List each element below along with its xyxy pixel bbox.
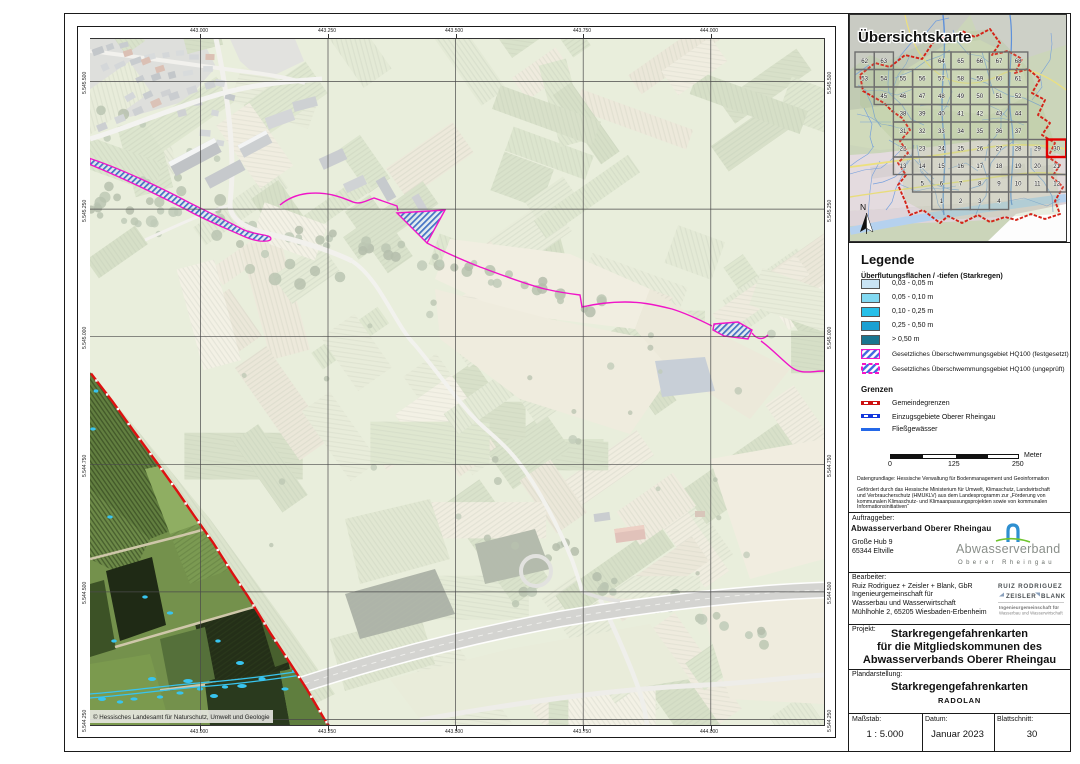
svg-text:37: 37 bbox=[1014, 128, 1021, 135]
svg-text:64: 64 bbox=[938, 58, 945, 65]
svg-text:10: 10 bbox=[1014, 180, 1021, 187]
svg-text:5: 5 bbox=[920, 180, 924, 187]
svg-text:22: 22 bbox=[899, 145, 906, 152]
svg-text:52: 52 bbox=[1014, 93, 1021, 100]
svg-text:38: 38 bbox=[899, 110, 906, 117]
svg-text:55: 55 bbox=[899, 75, 906, 82]
svg-text:68: 68 bbox=[1014, 58, 1021, 65]
svg-text:RUIZ RODRIGUEZ: RUIZ RODRIGUEZ bbox=[998, 583, 1062, 590]
svg-text:65: 65 bbox=[957, 58, 964, 65]
svg-text:24: 24 bbox=[938, 145, 945, 152]
svg-text:Oberer Rheingau: Oberer Rheingau bbox=[958, 560, 1055, 566]
svg-text:66: 66 bbox=[976, 58, 983, 65]
svg-text:6: 6 bbox=[939, 180, 943, 187]
svg-text:50: 50 bbox=[976, 93, 983, 100]
svg-text:Wasserbau und Wasserwirtschaft: Wasserbau und Wasserwirtschaft bbox=[999, 611, 1063, 616]
svg-text:28: 28 bbox=[1014, 145, 1021, 152]
svg-text:30: 30 bbox=[1053, 145, 1060, 152]
svg-text:48: 48 bbox=[938, 93, 945, 100]
svg-text:11: 11 bbox=[1034, 180, 1041, 187]
svg-text:39: 39 bbox=[918, 110, 925, 117]
svg-text:20: 20 bbox=[1034, 162, 1041, 169]
svg-text:58: 58 bbox=[957, 75, 964, 82]
svg-text:12: 12 bbox=[1053, 180, 1060, 187]
svg-text:27: 27 bbox=[995, 145, 1002, 152]
svg-text:51: 51 bbox=[995, 93, 1002, 100]
svg-text:Ingenieurgemeinschaft für: Ingenieurgemeinschaft für bbox=[999, 605, 1059, 610]
svg-text:49: 49 bbox=[957, 93, 964, 100]
svg-text:47: 47 bbox=[918, 93, 925, 100]
svg-text:31: 31 bbox=[899, 128, 906, 135]
svg-text:40: 40 bbox=[938, 110, 945, 117]
svg-text:N: N bbox=[860, 202, 866, 212]
svg-text:14: 14 bbox=[918, 162, 925, 169]
svg-text:43: 43 bbox=[995, 110, 1002, 117]
svg-text:1: 1 bbox=[939, 197, 943, 204]
svg-text:21: 21 bbox=[1053, 162, 1060, 169]
svg-text:Abwasserverband: Abwasserverband bbox=[956, 542, 1061, 556]
svg-text:62: 62 bbox=[861, 58, 868, 65]
svg-text:59: 59 bbox=[976, 75, 983, 82]
svg-text:61: 61 bbox=[1014, 75, 1021, 82]
svg-text:BLANK: BLANK bbox=[1041, 593, 1066, 600]
svg-text:32: 32 bbox=[918, 128, 925, 135]
svg-text:67: 67 bbox=[995, 58, 1002, 65]
svg-text:16: 16 bbox=[957, 162, 964, 169]
svg-text:36: 36 bbox=[995, 128, 1002, 135]
svg-text:Übersichtskarte: Übersichtskarte bbox=[858, 29, 971, 46]
svg-text:35: 35 bbox=[976, 128, 983, 135]
svg-text:41: 41 bbox=[957, 110, 964, 117]
svg-text:ZEISLER: ZEISLER bbox=[1006, 593, 1036, 600]
svg-text:56: 56 bbox=[918, 75, 925, 82]
svg-text:46: 46 bbox=[899, 93, 906, 100]
svg-text:42: 42 bbox=[976, 110, 983, 117]
svg-text:45: 45 bbox=[880, 93, 887, 100]
svg-text:57: 57 bbox=[938, 75, 945, 82]
svg-text:53: 53 bbox=[861, 75, 868, 82]
svg-text:54: 54 bbox=[880, 75, 887, 82]
svg-text:34: 34 bbox=[957, 128, 964, 135]
svg-text:60: 60 bbox=[995, 75, 1002, 82]
svg-text:33: 33 bbox=[938, 128, 945, 135]
svg-text:17: 17 bbox=[976, 162, 983, 169]
svg-text:29: 29 bbox=[1034, 145, 1041, 152]
svg-text:63: 63 bbox=[880, 58, 887, 65]
svg-text:18: 18 bbox=[995, 162, 1002, 169]
svg-text:© Hessisches Landesamt für Nat: © Hessisches Landesamt für Naturschutz, … bbox=[93, 714, 270, 721]
svg-text:13: 13 bbox=[899, 162, 906, 169]
svg-text:23: 23 bbox=[918, 145, 925, 152]
svg-text:19: 19 bbox=[1014, 162, 1021, 169]
svg-text:15: 15 bbox=[938, 162, 945, 169]
svg-text:44: 44 bbox=[1014, 110, 1021, 117]
svg-text:26: 26 bbox=[976, 145, 983, 152]
svg-text:25: 25 bbox=[957, 145, 964, 152]
